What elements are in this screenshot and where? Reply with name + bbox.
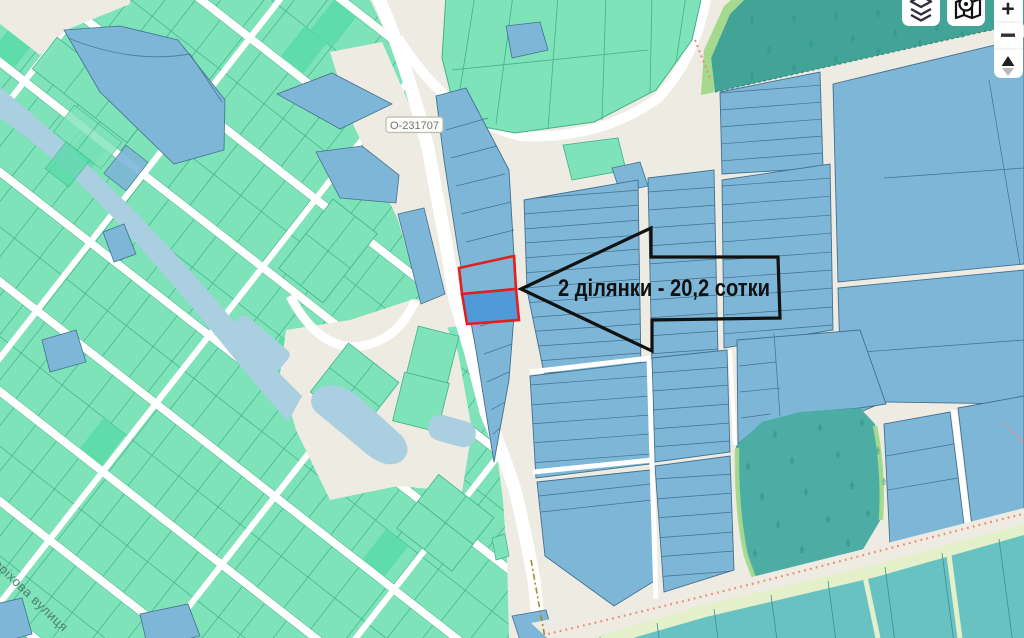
svg-text:2 ділянки - 20,2 сотки: 2 ділянки - 20,2 сотки — [558, 275, 770, 302]
svg-text:О-231707: О-231707 — [390, 120, 439, 132]
svg-text:+: + — [1001, 0, 1014, 22]
